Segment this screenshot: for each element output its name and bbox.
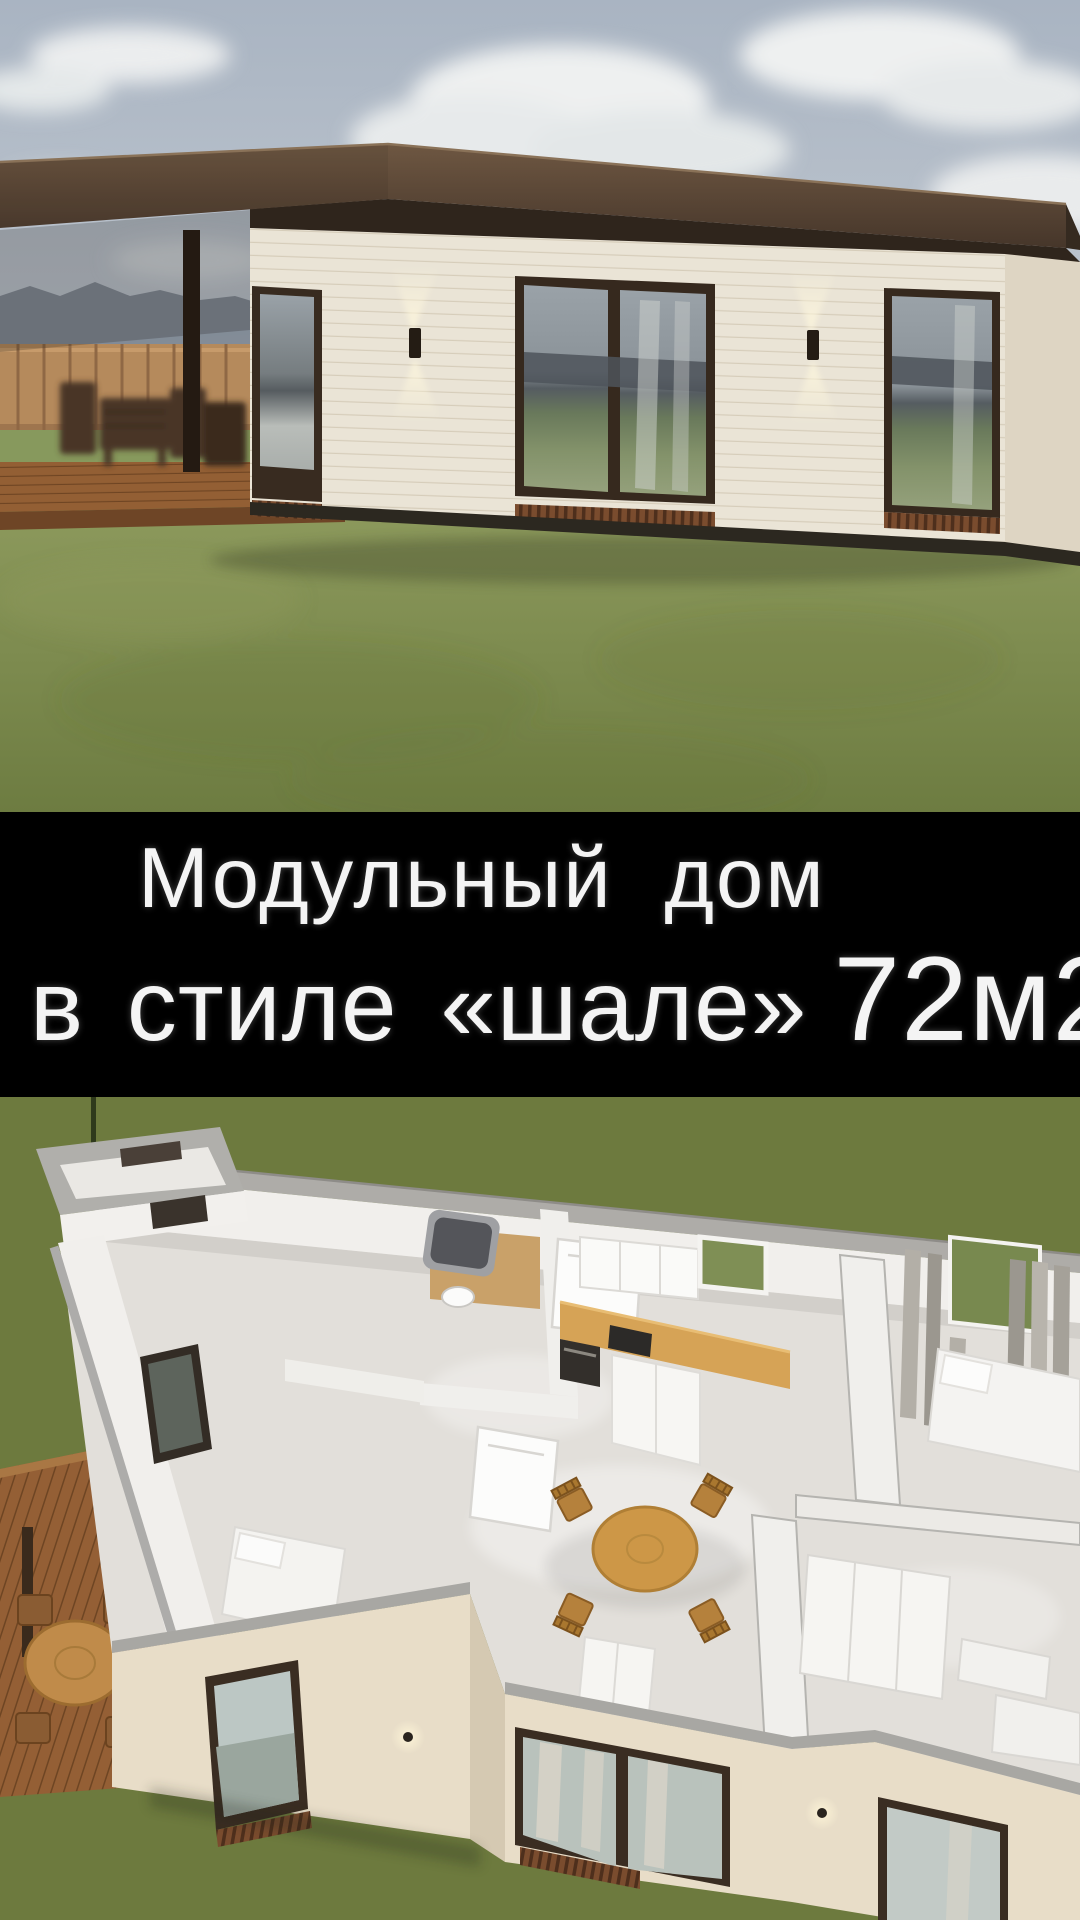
exterior-render — [0, 0, 1080, 812]
caption-line-1: Модульный дом — [138, 836, 826, 921]
caption-area-value: 72м2 — [833, 932, 1080, 1066]
wall-sconce-icon — [391, 1720, 425, 1754]
bathtub — [421, 1208, 501, 1277]
video-frame: Модульный дом в стиле «шале»72м2 — [0, 0, 1080, 1920]
side-wall — [1005, 254, 1080, 556]
sink — [442, 1287, 474, 1307]
floorplan-render — [0, 1097, 1080, 1920]
bedroom-1-window — [950, 1237, 1040, 1332]
living-room-window — [515, 276, 715, 530]
floorplan-scene — [0, 1097, 1080, 1920]
porch-shade — [0, 210, 250, 352]
entry-door-window — [252, 286, 322, 520]
sheer-curtain — [536, 1742, 562, 1842]
kitchen-window — [700, 1237, 766, 1293]
caption-line-2: в стиле «шале»72м2 — [30, 930, 1080, 1068]
wardrobe — [800, 1555, 950, 1699]
wall-sconce-icon — [805, 1796, 839, 1830]
oven — [560, 1339, 600, 1387]
pole — [91, 1097, 96, 1145]
upper-cabinets — [580, 1237, 698, 1299]
exterior-scene — [0, 0, 1080, 812]
caption-banner: Модульный дом в стиле «шале»72м2 — [0, 812, 1080, 1097]
caption-style-text: в стиле «шале» — [30, 950, 807, 1062]
porch-post — [183, 230, 200, 472]
deck-post — [22, 1527, 33, 1657]
dining-table — [593, 1507, 697, 1591]
bedroom-window — [884, 288, 1000, 534]
